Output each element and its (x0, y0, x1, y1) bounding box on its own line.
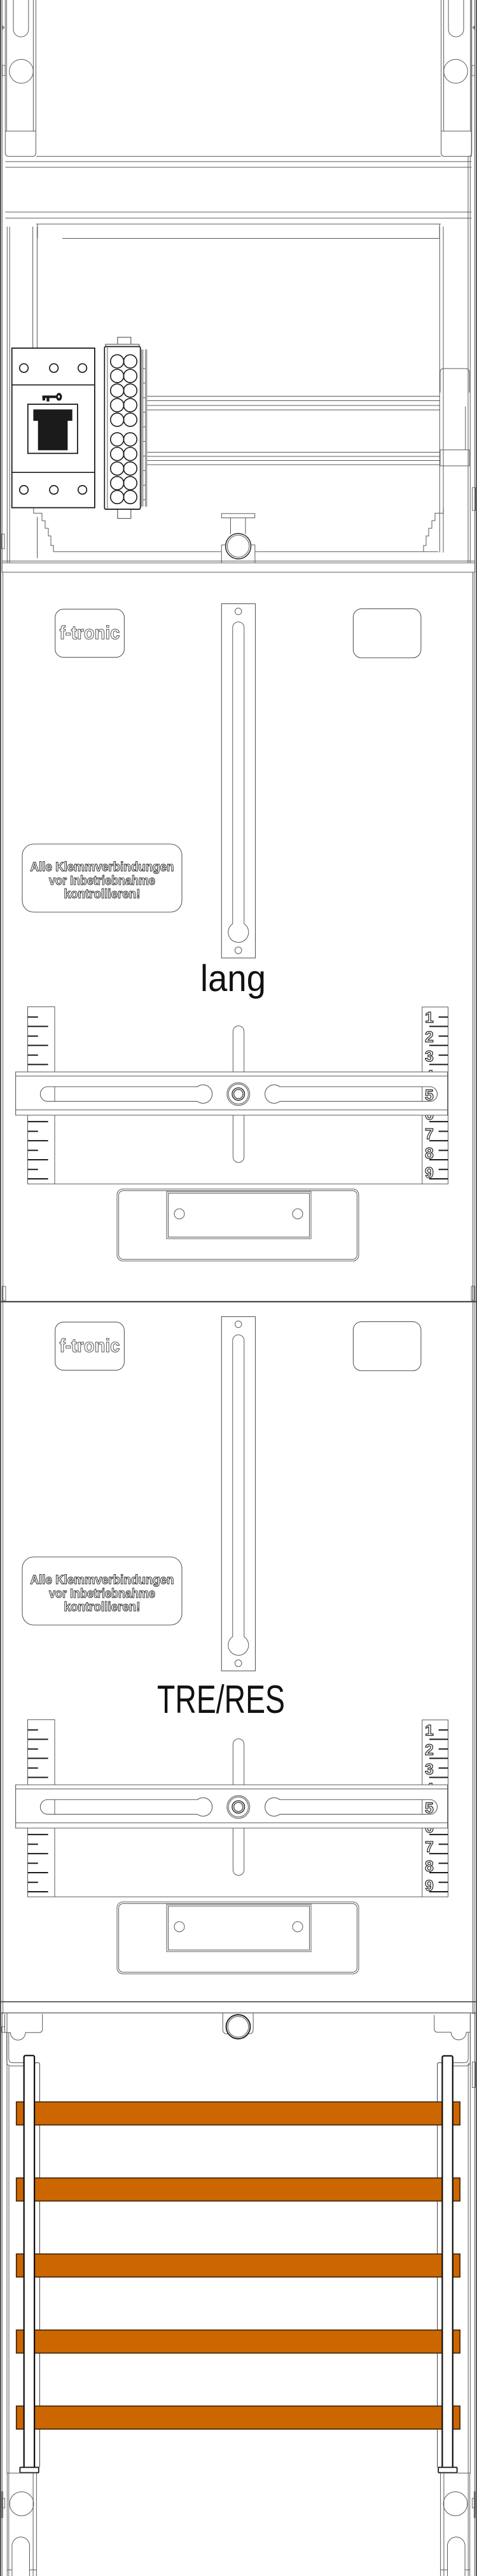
svg-text:9: 9 (425, 1164, 434, 1181)
svg-text:1: 1 (425, 1010, 434, 1027)
svg-text:Alle Klemmverbindungen: Alle Klemmverbindungen (31, 861, 174, 875)
svg-text:3: 3 (425, 1048, 434, 1066)
svg-text:7: 7 (425, 1125, 434, 1143)
svg-text:TRE/RES: TRE/RES (157, 1678, 285, 1722)
svg-text:vor Inbetriebnahme: vor Inbetriebnahme (49, 874, 155, 888)
svg-text:f-tronic: f-tronic (60, 623, 120, 644)
svg-text:8: 8 (425, 1145, 434, 1162)
svg-text:lang: lang (200, 958, 266, 999)
svg-text:2: 2 (425, 1029, 434, 1046)
svg-text:kontrollieren!: kontrollieren! (64, 887, 141, 901)
